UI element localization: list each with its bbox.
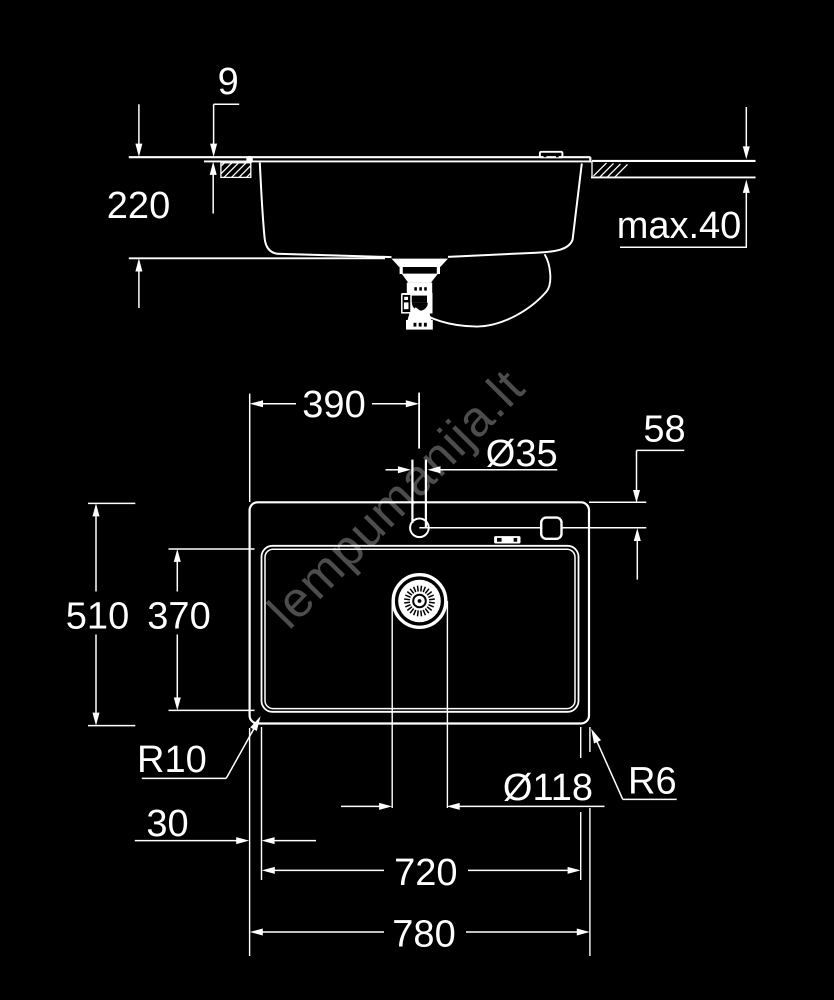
svg-text:Ø118: Ø118 bbox=[503, 767, 593, 809]
svg-text:780: 780 bbox=[392, 914, 455, 956]
svg-text:30: 30 bbox=[146, 803, 188, 845]
svg-text:58: 58 bbox=[643, 409, 685, 451]
svg-text:720: 720 bbox=[394, 852, 457, 894]
svg-text:220: 220 bbox=[107, 185, 170, 227]
svg-text:R10: R10 bbox=[137, 739, 207, 781]
svg-text:510: 510 bbox=[66, 596, 129, 638]
svg-text:9: 9 bbox=[218, 61, 239, 103]
svg-text:390: 390 bbox=[302, 384, 365, 426]
svg-text:370: 370 bbox=[147, 596, 210, 638]
svg-text:Ø35: Ø35 bbox=[486, 433, 558, 475]
svg-text:R6: R6 bbox=[628, 761, 677, 803]
svg-text:max.40: max.40 bbox=[617, 205, 742, 247]
